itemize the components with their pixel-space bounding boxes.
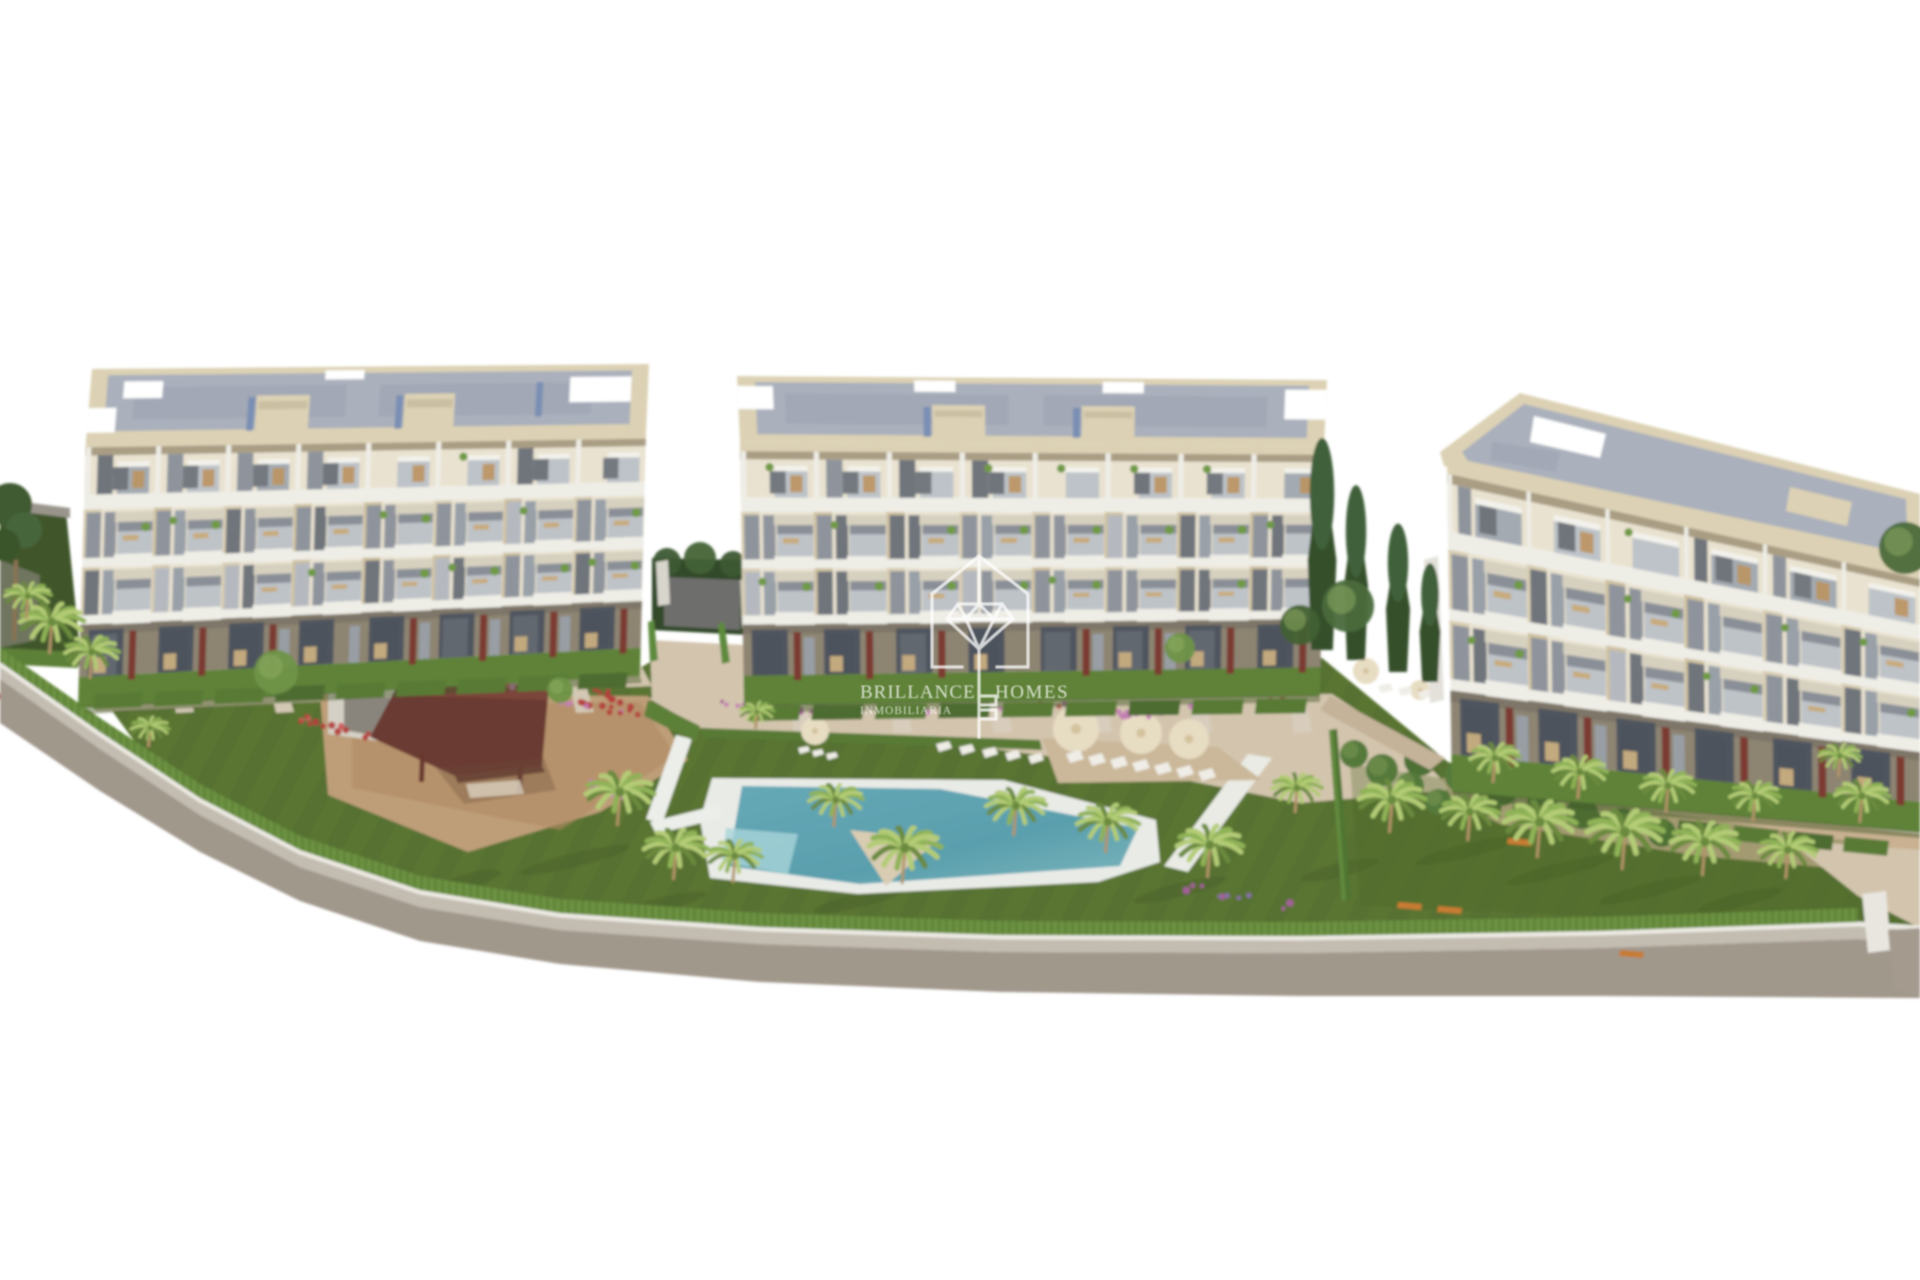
svg-text:INMOBILIARIA: INMOBILIARIA <box>860 705 952 717</box>
svg-text:BRILLANCE: BRILLANCE <box>860 682 976 703</box>
svg-text:HOMES: HOMES <box>995 682 1069 703</box>
